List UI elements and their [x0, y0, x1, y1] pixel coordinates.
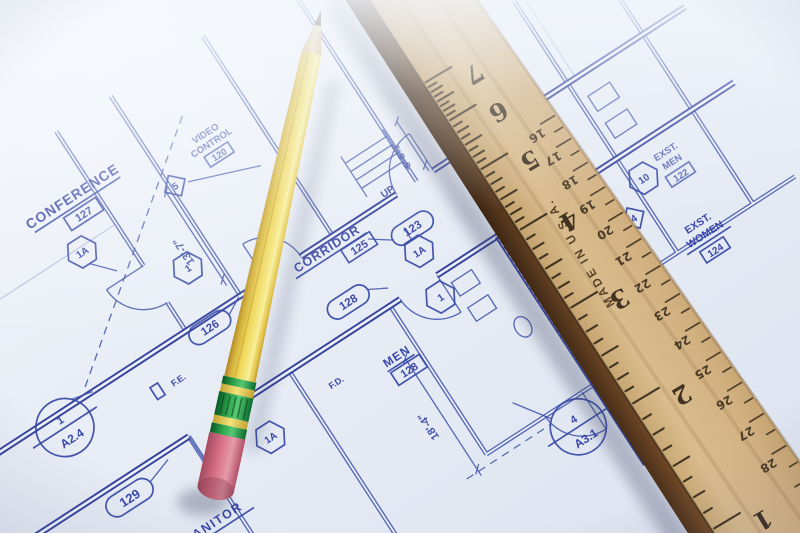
vignette: [0, 0, 800, 533]
photo-blueprint-pencil-ruler: CONFERENCE 127 VIDEO CONTROL 120 CORRIDO…: [0, 0, 800, 533]
photo-canvas: CONFERENCE 127 VIDEO CONTROL 120 CORRIDO…: [0, 0, 800, 533]
